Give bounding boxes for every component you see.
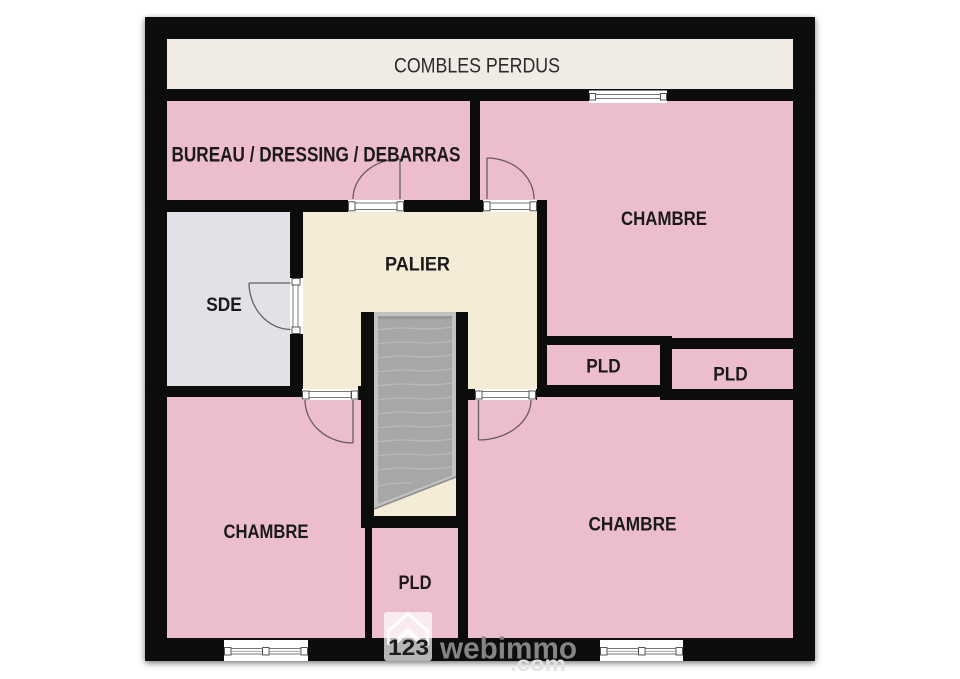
- svg-text:CHAMBRE: CHAMBRE: [224, 521, 309, 543]
- svg-text:123: 123: [388, 635, 429, 660]
- svg-text:COMBLES PERDUS: COMBLES PERDUS: [394, 54, 560, 78]
- svg-text:SDE: SDE: [206, 294, 242, 316]
- svg-text:PLD: PLD: [399, 572, 432, 594]
- svg-text:.com: .com: [510, 653, 566, 676]
- svg-text:CHAMBRE: CHAMBRE: [589, 514, 677, 536]
- svg-text:BUREAU / DRESSING / DEBARRAS: BUREAU / DRESSING / DEBARRAS: [172, 143, 461, 167]
- svg-text:CHAMBRE: CHAMBRE: [621, 208, 707, 230]
- svg-text:PALIER: PALIER: [385, 254, 450, 276]
- svg-text:PLD: PLD: [713, 364, 748, 386]
- svg-text:PLD: PLD: [586, 356, 621, 378]
